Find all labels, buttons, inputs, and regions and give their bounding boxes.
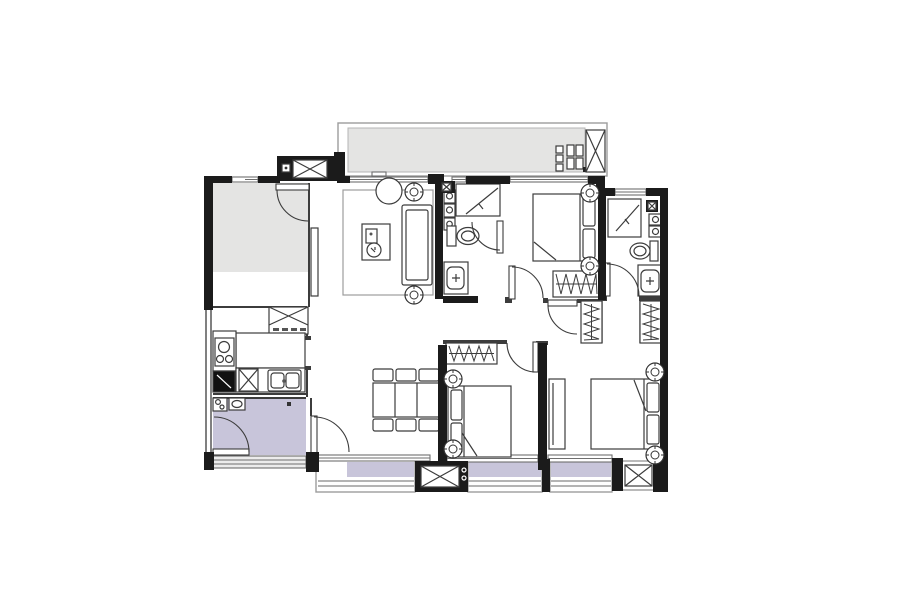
drying-rack-cell xyxy=(576,158,583,169)
drying-rack-cell xyxy=(556,146,563,153)
desk xyxy=(549,379,565,449)
vent-dash xyxy=(300,328,306,331)
toilet-bowl xyxy=(630,243,650,259)
switch-dot xyxy=(287,402,291,406)
wall xyxy=(204,176,232,183)
wall xyxy=(435,181,443,299)
wall xyxy=(612,458,623,491)
dining-chair xyxy=(419,419,439,431)
faucet-dot xyxy=(282,379,286,383)
toilet-tank xyxy=(650,241,658,261)
vent-dash xyxy=(291,328,297,331)
door-leaf-master xyxy=(509,266,515,299)
dining-chair xyxy=(419,369,439,381)
round-table xyxy=(376,178,402,204)
pillow xyxy=(647,415,659,444)
ceiling-fixture xyxy=(405,286,423,304)
entry-sill xyxy=(213,456,306,468)
door-leaf-bedroom3 xyxy=(548,300,577,306)
shower-stall xyxy=(456,184,500,216)
floor-plan-drawing xyxy=(0,0,900,600)
vent-dash xyxy=(273,328,279,331)
shower-stall xyxy=(608,199,641,237)
master-bedroom-set xyxy=(533,194,600,297)
wall-seg xyxy=(639,296,661,301)
ensuite-bathroom-fixtures xyxy=(444,184,500,294)
drying-rack-cell xyxy=(556,164,563,171)
wall xyxy=(542,459,550,492)
balcony-strip-right-floor xyxy=(551,462,611,477)
dining-chair xyxy=(396,419,416,431)
wall xyxy=(660,194,668,468)
door-swing xyxy=(512,267,543,298)
washer-stack xyxy=(444,204,455,217)
multipurpose-room-floor xyxy=(213,183,309,272)
door-leaf-entry-inner xyxy=(311,416,317,453)
wall xyxy=(598,188,606,300)
wall-bath-nook xyxy=(602,301,640,343)
wall xyxy=(443,296,478,303)
kitchen-worktop xyxy=(236,333,305,368)
ceiling-fixture xyxy=(444,370,462,388)
door-leaf-multipurpose xyxy=(276,184,309,190)
wall xyxy=(306,452,319,472)
balcony-laundry-icons xyxy=(556,145,588,172)
tv-console xyxy=(311,228,318,296)
dining-chair xyxy=(396,369,416,381)
tray-dot xyxy=(370,233,373,236)
coffee-table-tray xyxy=(366,229,377,243)
ceiling-fixture xyxy=(581,184,599,202)
door-leaf-bedroom2 xyxy=(533,342,538,372)
wall xyxy=(466,176,510,184)
balcony-strip-left-floor xyxy=(347,462,414,477)
door-swing xyxy=(472,222,500,250)
door-swing xyxy=(314,417,349,452)
floor-plan-canvas xyxy=(0,0,900,600)
door-leaf-ensuite xyxy=(497,221,503,253)
door-leaf-entry-main xyxy=(213,449,249,455)
door-swing xyxy=(607,264,639,296)
drying-rack-cell xyxy=(567,145,574,156)
wall-entry-north-threshold xyxy=(213,394,306,398)
balcony-top-floor xyxy=(348,128,585,172)
wall xyxy=(204,452,214,470)
drying-rack-cell xyxy=(567,158,574,169)
door-swing xyxy=(507,343,536,372)
wall-seg xyxy=(543,298,548,303)
balcony-strip-center-floor xyxy=(469,462,541,477)
door-swing xyxy=(548,305,577,334)
teapot-icon xyxy=(367,243,381,257)
wall xyxy=(334,152,345,178)
drying-rack-cell xyxy=(576,145,583,156)
wall xyxy=(204,176,213,310)
kitchen-pass-jamb xyxy=(305,366,311,370)
vent-dash xyxy=(282,328,288,331)
kitchen-fixtures xyxy=(213,307,308,392)
small-box-dot xyxy=(285,167,288,170)
ceiling-fixture xyxy=(646,363,664,381)
ceiling-fixture xyxy=(646,446,664,464)
wall xyxy=(258,176,280,183)
window-slider-marker xyxy=(372,172,386,176)
pillow xyxy=(583,229,595,258)
kitchen-pass-jamb xyxy=(305,336,311,340)
dining-chair xyxy=(373,419,393,431)
dining-set xyxy=(373,369,440,431)
toilet-tank xyxy=(447,226,456,246)
drying-rack-cell xyxy=(556,155,563,162)
pillow xyxy=(451,390,462,420)
ceiling-fixture xyxy=(405,183,423,201)
ceiling-fixture xyxy=(444,440,462,458)
wall-left-lower xyxy=(206,310,211,452)
dining-chair xyxy=(373,369,393,381)
ceiling-fixture xyxy=(581,257,599,275)
pillow xyxy=(647,383,659,412)
dining-table xyxy=(373,383,440,417)
wall xyxy=(538,343,547,470)
bedroom3-set xyxy=(549,379,661,449)
wall xyxy=(337,176,350,183)
